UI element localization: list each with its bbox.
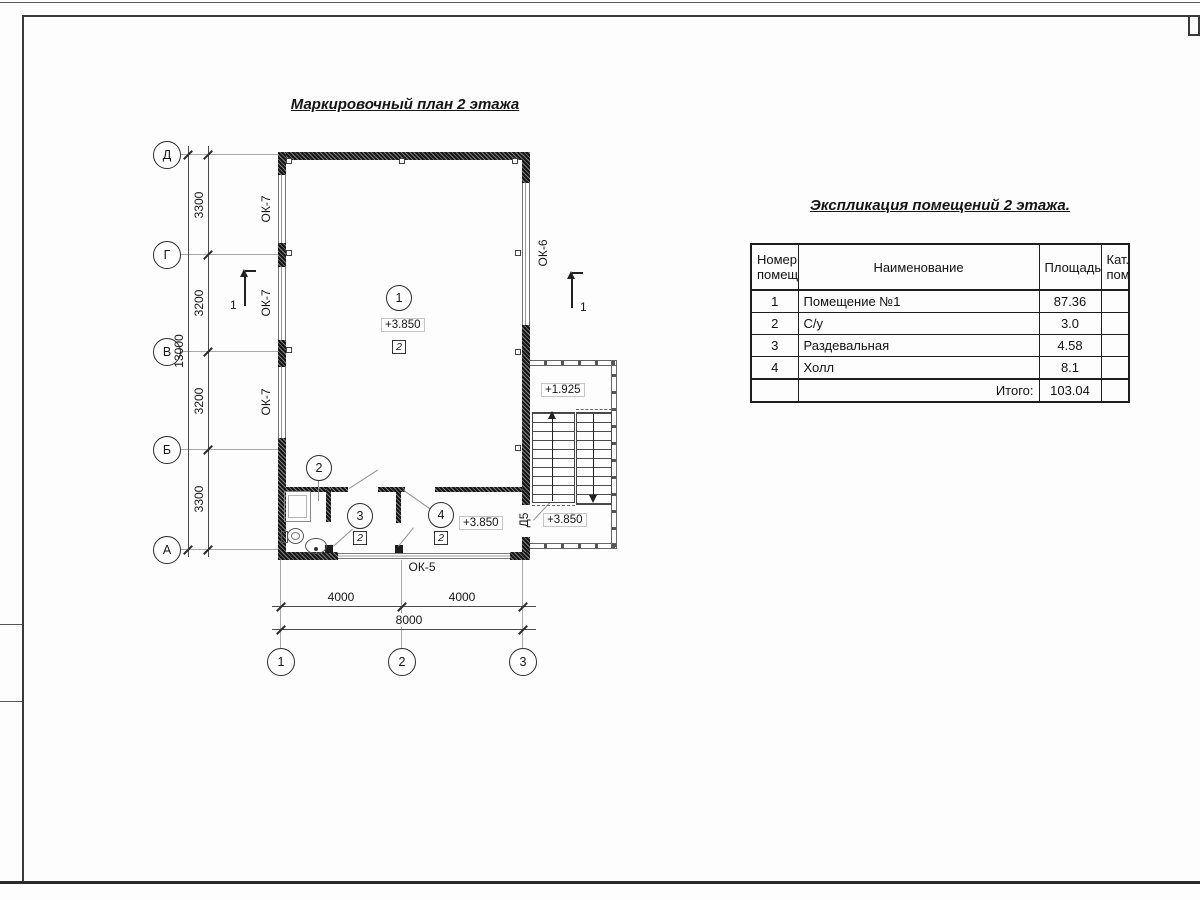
window-ok7-3 [278, 367, 286, 438]
table-title: Экспликация помещений 2 этажа. [790, 197, 1090, 214]
room-number-circle: 2 [306, 455, 332, 481]
frame-margin-mark [0, 624, 22, 625]
stair-break-line [532, 505, 575, 506]
cell-empty [1101, 379, 1129, 402]
axis-circle-3: 3 [509, 648, 537, 676]
stair-upper-elevation: +1.925 [541, 383, 585, 397]
cell-room-area: 8.1 [1039, 357, 1101, 380]
dim-tick [397, 602, 407, 612]
axis-line [181, 154, 278, 155]
dim-tick [276, 602, 286, 612]
axis-circle-g: Г [153, 241, 181, 269]
floor-type-box: 2 [392, 340, 406, 354]
stair-break-line [576, 409, 612, 410]
header-name: Наименование [798, 244, 1039, 290]
cell-room-name: Помещение №1 [798, 290, 1039, 313]
jamb-square [512, 158, 518, 164]
leader-line [333, 529, 353, 547]
header-category: Кат.пом. [1101, 244, 1129, 290]
cell-room-category [1101, 290, 1129, 313]
window-ok6 [522, 183, 530, 325]
table-row: 4 Холл 8.1 [751, 357, 1129, 380]
jamb-square [515, 445, 521, 451]
leader-line [398, 527, 414, 546]
cell-empty [751, 379, 798, 402]
partition-h3 [435, 487, 522, 492]
stair-rail-top [530, 360, 617, 366]
frame-top-line [22, 15, 1200, 17]
shower-tray-inner [288, 495, 307, 518]
door-swing [349, 469, 378, 488]
room-number-circle: 3 [347, 503, 373, 529]
sink-drain [314, 547, 318, 551]
jamb-square [286, 347, 292, 353]
stair-rail-bottom [530, 543, 617, 549]
dim-label: 4000 [442, 590, 482, 604]
jamb-square [286, 158, 292, 164]
axis-circle-2: 2 [388, 648, 416, 676]
total-label: Итого: [798, 379, 1039, 402]
floor-type-box: 2 [353, 531, 367, 545]
wall-bottom-right [510, 552, 530, 560]
cell-room-category [1101, 357, 1129, 380]
sheet-edge-line [0, 2, 1200, 3]
cell-room-name: Холл [798, 357, 1039, 380]
dim-label: 3300 [192, 185, 206, 225]
wall-left-pier [278, 340, 286, 367]
header-area: Площадь [1039, 244, 1101, 290]
frame-bottom-line [0, 881, 1200, 884]
window-ok7-1 [278, 175, 286, 243]
axis-line [181, 549, 278, 550]
door-label-d5: Д5 [517, 505, 531, 535]
cell-room-area: 3.0 [1039, 313, 1101, 335]
axis-line [181, 449, 278, 450]
toilet-bowl-inner [291, 532, 300, 540]
stair-flight-up [532, 412, 575, 503]
cell-room-category [1101, 313, 1129, 335]
total-value: 103.04 [1039, 379, 1101, 402]
cell-room-name: Раздевальная [798, 335, 1039, 357]
section-mark-line [244, 276, 246, 306]
window-label-ok7: ОК-7 [259, 189, 273, 229]
wall-left-pier [278, 243, 286, 267]
wall-right-pier [522, 152, 530, 183]
stair-direction-line [552, 419, 553, 501]
jamb-square [286, 250, 292, 256]
stair-lower-elevation: +3.850 [543, 513, 587, 527]
cell-room-number: 2 [751, 313, 798, 335]
cell-room-area: 4.58 [1039, 335, 1101, 357]
dimension-line-total [188, 146, 189, 557]
dim-tick [276, 625, 286, 635]
axis-circle-1: 1 [267, 648, 295, 676]
header-room-number: Номерпомещ. [751, 244, 798, 290]
axis-circle-b: Б [153, 436, 181, 464]
hall-elevation: +3.850 [459, 516, 503, 530]
floor-type-box: 2 [434, 531, 448, 545]
section-mark-bar [572, 272, 583, 274]
window-label-ok7: ОК-7 [259, 382, 273, 422]
dim-label-total: 8000 [389, 613, 429, 627]
cell-room-number: 4 [751, 357, 798, 380]
section-mark-bar [245, 270, 256, 272]
window-ok5 [338, 553, 510, 559]
axis-circle-a: А [153, 536, 181, 564]
section-mark-label: 1 [230, 298, 237, 312]
frame-margin-mark [0, 701, 22, 702]
stair-up-arrow [548, 411, 556, 419]
dim-label: 4000 [321, 590, 361, 604]
cell-room-number: 3 [751, 335, 798, 357]
table-row: 2 С/у 3.0 [751, 313, 1129, 335]
table-total-row: Итого: 103.04 [751, 379, 1129, 402]
frame-left-line [22, 15, 24, 882]
stair-direction-line [593, 414, 594, 496]
axis-circle-d: Д [153, 141, 181, 169]
dim-label: 3200 [192, 283, 206, 323]
sink [305, 538, 327, 554]
table-header-row: Номерпомещ. Наименование Площадь Кат.пом… [751, 244, 1129, 290]
drawing-sheet: Маркировочный план 2 этажа Экспликация п… [0, 0, 1200, 900]
section-mark-line [571, 278, 573, 308]
dim-tick [518, 625, 528, 635]
jamb-square [399, 158, 405, 164]
plan-title: Маркировочный план 2 этажа [250, 96, 560, 113]
window-label-ok5: ОК-5 [400, 560, 444, 574]
room-specification-table: Номерпомещ. Наименование Площадь Кат.пом… [750, 243, 1130, 403]
jamb-square [515, 349, 521, 355]
partition-v2 [396, 487, 401, 523]
stair-down-arrow [589, 495, 597, 503]
dimension-line-total [272, 629, 536, 630]
room-number-circle: 4 [428, 502, 454, 528]
cell-room-name: С/у [798, 313, 1039, 335]
window-label-ok6: ОК-6 [536, 233, 550, 273]
window-label-ok7: ОК-7 [259, 283, 273, 323]
dim-label-total: 13000 [172, 326, 186, 376]
section-mark-label: 1 [580, 300, 587, 314]
axis-line [181, 254, 278, 255]
frame-corner-box [1188, 15, 1200, 36]
dim-tick [518, 602, 528, 612]
partition-v1 [326, 487, 331, 522]
jamb-square [515, 250, 521, 256]
cell-room-area: 87.36 [1039, 290, 1101, 313]
dim-label: 3300 [192, 479, 206, 519]
table-row: 3 Раздевальная 4.58 [751, 335, 1129, 357]
dim-label: 3200 [192, 381, 206, 421]
wall-bottom-left [278, 552, 338, 560]
table-row: 1 Помещение №1 87.36 [751, 290, 1129, 313]
room1-elevation: +3.850 [381, 318, 425, 332]
wall-right-mid [522, 325, 530, 505]
leader-line [318, 481, 319, 501]
cell-room-number: 1 [751, 290, 798, 313]
door-swing [403, 490, 431, 510]
wall-left-pier [278, 152, 286, 175]
window-ok7-2 [278, 267, 286, 340]
axis-line [181, 351, 278, 352]
room-number-circle: 1 [386, 285, 412, 311]
cell-room-category [1101, 335, 1129, 357]
